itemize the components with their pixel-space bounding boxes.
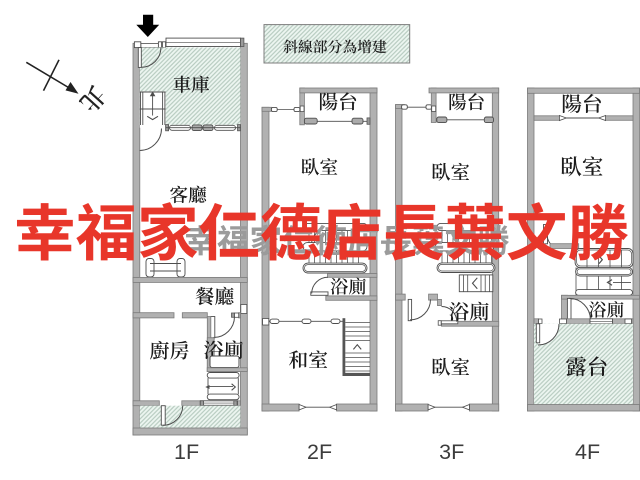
svg-text:2F: 2F — [307, 440, 332, 464]
svg-text:3F: 3F — [439, 440, 464, 464]
svg-text:1F: 1F — [174, 440, 199, 464]
svg-text:4F: 4F — [575, 440, 600, 464]
